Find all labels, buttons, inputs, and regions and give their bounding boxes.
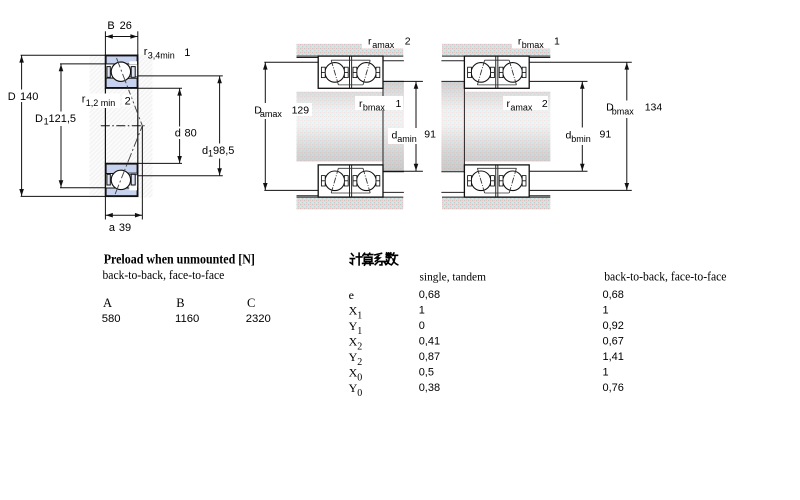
svg-text:bmax: bmax	[363, 103, 386, 113]
svg-text:3,4min: 3,4min	[148, 51, 175, 61]
svg-text:a: a	[109, 222, 116, 234]
svg-text:Preload when unmounted [N]: Preload when unmounted [N]	[104, 251, 255, 266]
svg-text:0,5: 0,5	[419, 367, 434, 379]
svg-text:129: 129	[292, 105, 310, 117]
svg-text:2320: 2320	[246, 313, 271, 325]
svg-text:D: D	[35, 113, 43, 125]
svg-text:amax: amax	[260, 109, 283, 119]
svg-text:2: 2	[125, 96, 131, 108]
svg-text:1160: 1160	[175, 313, 199, 325]
svg-text:A: A	[103, 296, 112, 310]
svg-text:0,76: 0,76	[603, 382, 624, 394]
svg-text:121,5: 121,5	[49, 113, 77, 125]
svg-text:1: 1	[554, 36, 560, 48]
svg-text:single, tandem: single, tandem	[420, 272, 487, 284]
svg-text:d: d	[175, 128, 181, 140]
svg-text:0: 0	[419, 320, 425, 332]
svg-text:140: 140	[20, 91, 38, 103]
svg-text:amax: amax	[510, 103, 533, 113]
svg-text:bmin: bmin	[571, 134, 591, 144]
svg-text:B: B	[176, 296, 184, 310]
svg-text:1: 1	[419, 305, 425, 317]
svg-text:1: 1	[603, 305, 609, 317]
svg-text:91: 91	[424, 129, 436, 141]
svg-text:0,67: 0,67	[603, 336, 624, 348]
svg-text:bmax: bmax	[522, 40, 545, 50]
svg-text:0,41: 0,41	[419, 336, 440, 348]
svg-text:D: D	[8, 91, 16, 103]
svg-text:amin: amin	[397, 134, 417, 144]
svg-text:1,41: 1,41	[603, 351, 624, 363]
svg-text:1: 1	[357, 326, 362, 337]
svg-text:0,92: 0,92	[603, 320, 624, 332]
svg-text:1: 1	[396, 98, 402, 110]
svg-text:C: C	[247, 296, 255, 310]
svg-text:0,87: 0,87	[419, 351, 440, 363]
svg-text:80: 80	[185, 128, 197, 140]
svg-text:back-to-back, face-to-face: back-to-back, face-to-face	[103, 268, 225, 282]
svg-text:back-to-back, face-to-face: back-to-back, face-to-face	[604, 270, 727, 284]
svg-text:2: 2	[405, 36, 411, 48]
svg-text:26: 26	[120, 20, 132, 32]
svg-text:39: 39	[119, 222, 131, 234]
svg-text:0,68: 0,68	[419, 289, 440, 301]
svg-text:e: e	[349, 288, 354, 302]
svg-text:1: 1	[357, 310, 362, 321]
svg-text:1: 1	[184, 47, 190, 59]
svg-text:0: 0	[357, 388, 362, 399]
svg-text:0,68: 0,68	[603, 289, 624, 301]
svg-text:1: 1	[603, 367, 609, 379]
svg-text:2: 2	[357, 357, 362, 368]
svg-text:91: 91	[600, 129, 612, 141]
svg-text:bmax: bmax	[612, 106, 635, 116]
svg-text:B: B	[107, 20, 114, 32]
svg-text:134: 134	[645, 102, 663, 114]
svg-text:580: 580	[102, 313, 121, 325]
svg-text:amax: amax	[372, 40, 395, 50]
svg-text:0: 0	[357, 372, 362, 383]
svg-text:1,2 min: 1,2 min	[86, 98, 116, 108]
svg-text:2: 2	[542, 98, 548, 110]
svg-text:98,5: 98,5	[213, 145, 234, 157]
svg-text:0,38: 0,38	[419, 382, 440, 394]
svg-text:2: 2	[357, 341, 362, 352]
